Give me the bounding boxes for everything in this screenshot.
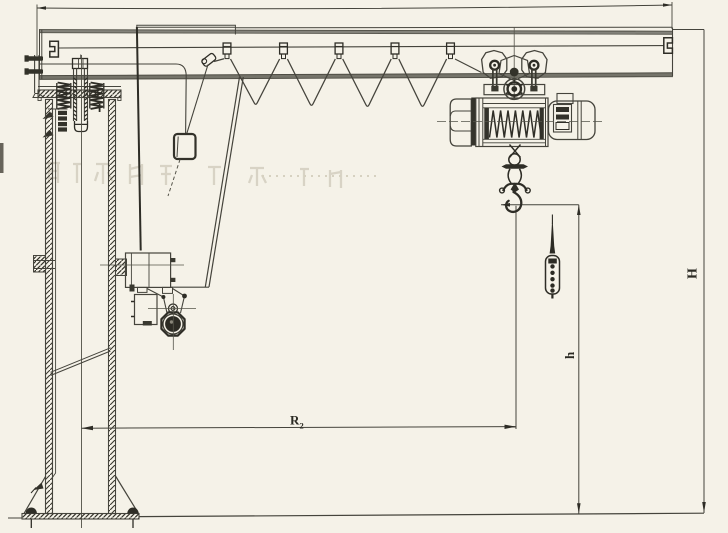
svg-text:h: h	[562, 351, 577, 359]
svg-text:R: R	[290, 413, 300, 428]
svg-text:H: H	[686, 268, 701, 279]
svg-text:2: 2	[300, 421, 304, 431]
